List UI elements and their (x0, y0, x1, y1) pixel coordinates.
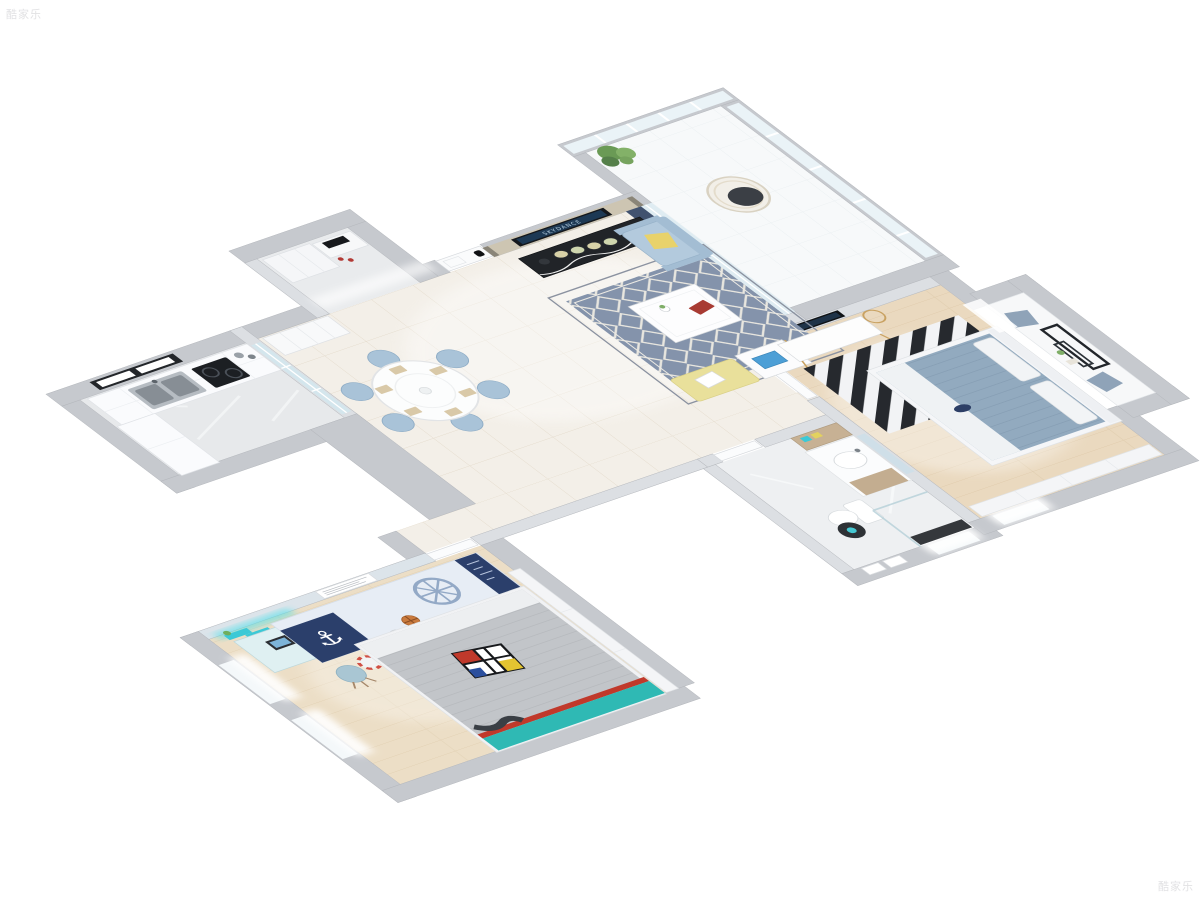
watermark-top-left: 酷家乐 (6, 6, 42, 22)
floorplan-render: 酷家乐 (0, 0, 1200, 900)
watermark-bottom-right: 酷家乐 (1158, 878, 1194, 894)
floorplan-svg: SKYDANCE (0, 0, 1200, 900)
apartment: SKYDANCE (0, 69, 1200, 802)
